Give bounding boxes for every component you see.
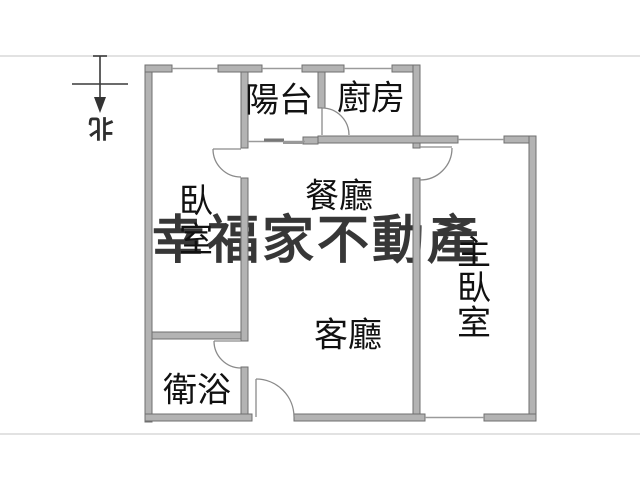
wall-exterior-top-seg3: [302, 65, 344, 72]
room-label-dining: 餐廳: [305, 178, 373, 216]
wall-bathroom-living-divider: [241, 367, 248, 414]
north-label: 北: [88, 114, 113, 142]
north-arrow-head-icon: [94, 97, 106, 113]
wall-exterior-bottom-seg2: [294, 414, 425, 421]
room-label-balcony: 陽台: [245, 82, 313, 120]
wall-master-left: [413, 178, 420, 421]
room-label-bathroom: 衛浴: [163, 372, 231, 410]
room-label-master-char1: 主: [457, 236, 491, 273]
wall-exterior-right: [529, 136, 536, 421]
room-label-master-char3: 室: [457, 305, 491, 343]
wall-master-top-seg1: [318, 136, 458, 143]
wall-exterior-bottom-seg1: [145, 414, 252, 421]
room-label-master-char2: 臥: [457, 271, 491, 308]
room-label-kitchen: 廚房: [337, 80, 405, 118]
room-label-bedroom-char1: 臥: [179, 184, 213, 221]
door-arc-bedroom: [213, 149, 241, 177]
north-arrow: 北: [72, 56, 128, 142]
slider-panel-2: [283, 141, 303, 144]
wall-exterior-top-seg2: [218, 65, 262, 72]
floor-plan-drawing: 幸福家不動產 北: [0, 0, 640, 480]
wall-bedroom-dining-divider: [241, 178, 248, 341]
room-label-living: 客廳: [314, 317, 382, 355]
wall-exterior-top-seg1: [145, 65, 172, 72]
wall-exterior-left: [145, 65, 152, 422]
floor-plan-page: 幸福家不動產 北: [0, 0, 640, 480]
wall-bedroom-bathroom-divider: [152, 332, 241, 339]
wall-balcony-slider-block: [303, 137, 318, 144]
door-arc-entrance: [256, 379, 294, 417]
wall-balcony-kitchen-divider: [318, 72, 325, 108]
room-label-bedroom-char2: 室: [179, 222, 213, 260]
door-arc-master-bedroom: [420, 148, 452, 180]
door-arc-bathroom: [214, 341, 241, 368]
wall-exterior-bottom-seg3: [484, 414, 536, 421]
slider-panel-1: [264, 139, 284, 142]
